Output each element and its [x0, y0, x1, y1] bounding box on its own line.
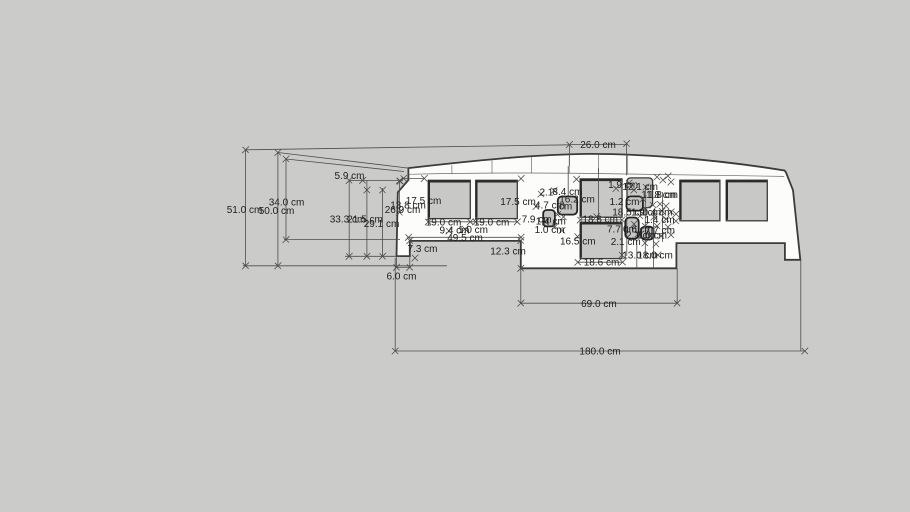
svg-text:6.0 cm: 6.0 cm — [386, 272, 416, 283]
svg-text:34.0 cm: 34.0 cm — [269, 198, 305, 209]
svg-text:18.0 cm: 18.0 cm — [637, 250, 673, 261]
svg-text:7.3 cm: 7.3 cm — [407, 244, 437, 255]
svg-text:18.6 cm: 18.6 cm — [584, 258, 620, 269]
svg-text:69.0 cm: 69.0 cm — [581, 299, 617, 310]
svg-text:51.0 cm: 51.0 cm — [227, 205, 263, 216]
svg-text:29.1 cm: 29.1 cm — [364, 219, 400, 230]
svg-text:180.0 cm: 180.0 cm — [579, 347, 620, 358]
svg-text:5.9 cm: 5.9 cm — [334, 171, 364, 182]
svg-text:1.8 cm: 1.8 cm — [648, 190, 678, 201]
svg-text:1.2 cm: 1.2 cm — [609, 197, 639, 208]
svg-text:12.3 cm: 12.3 cm — [490, 247, 526, 258]
svg-text:26.0 cm: 26.0 cm — [580, 140, 616, 151]
svg-text:17.5 cm: 17.5 cm — [500, 197, 536, 208]
svg-text:49.5 cm: 49.5 cm — [447, 233, 483, 244]
svg-text:cm: cm — [559, 202, 572, 213]
svg-text:16.5 cm: 16.5 cm — [560, 237, 596, 248]
svg-text:17.5 cm: 17.5 cm — [406, 196, 442, 207]
svg-text:1.0 cm: 1.0 cm — [637, 231, 667, 242]
svg-text:1.0 cm: 1.0 cm — [535, 225, 565, 236]
